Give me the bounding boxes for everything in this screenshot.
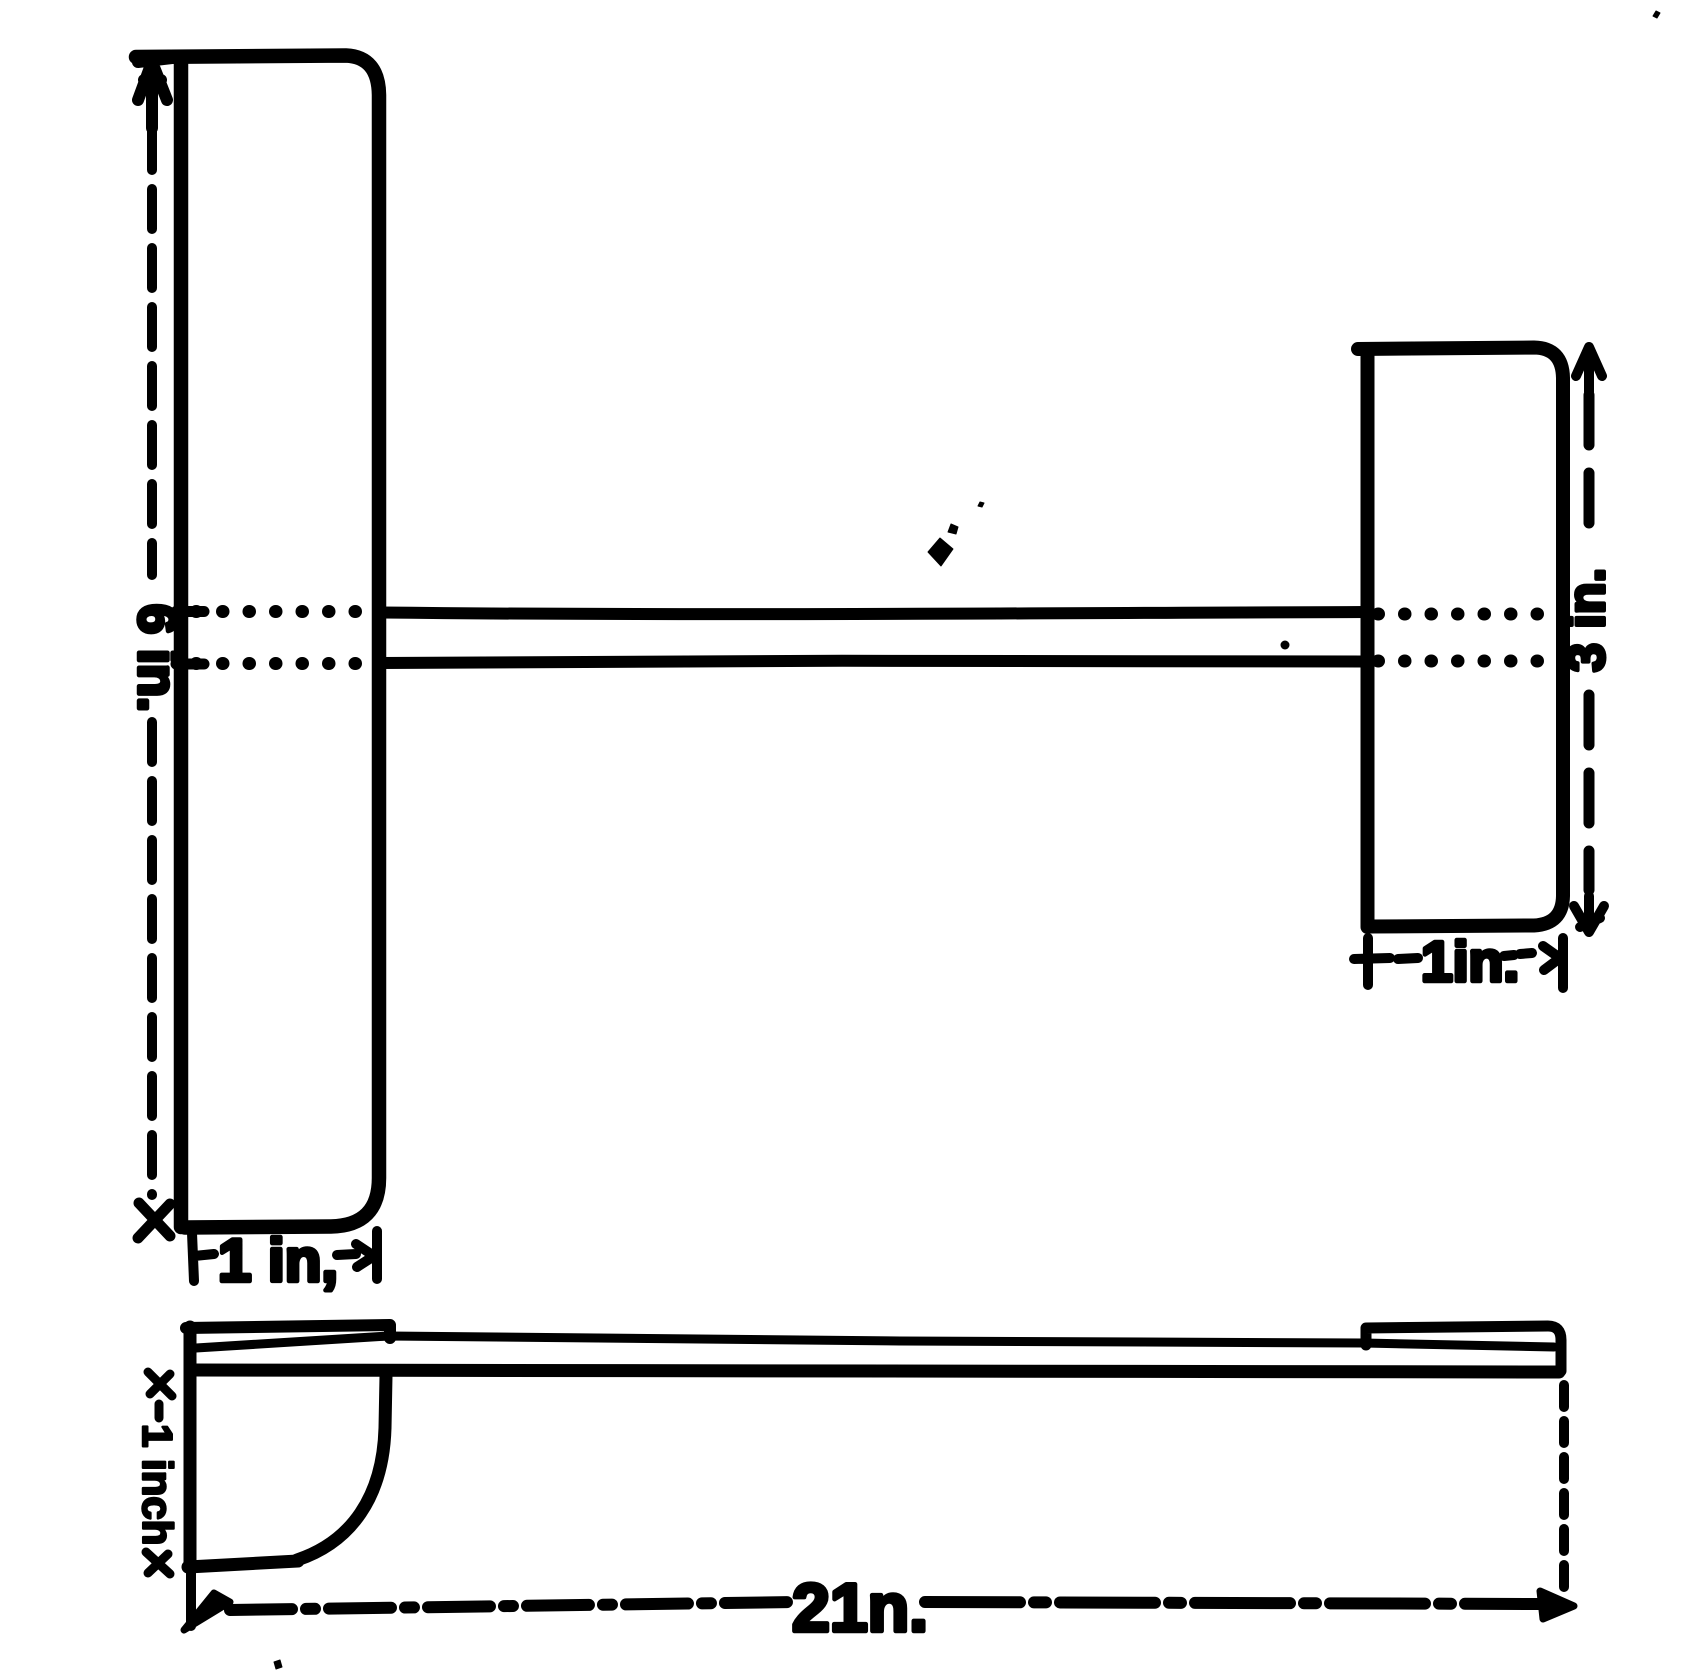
svg-text:1in.: 1in. [1421,930,1519,994]
svg-text:1 in,: 1 in, [218,1227,338,1294]
svg-text:6 in.: 6 in. [127,604,187,712]
svg-text:3 in.: 3 in. [1558,568,1616,672]
svg-text:1 inch: 1 inch [134,1424,181,1545]
svg-text:21n.: 21n. [792,1570,928,1646]
